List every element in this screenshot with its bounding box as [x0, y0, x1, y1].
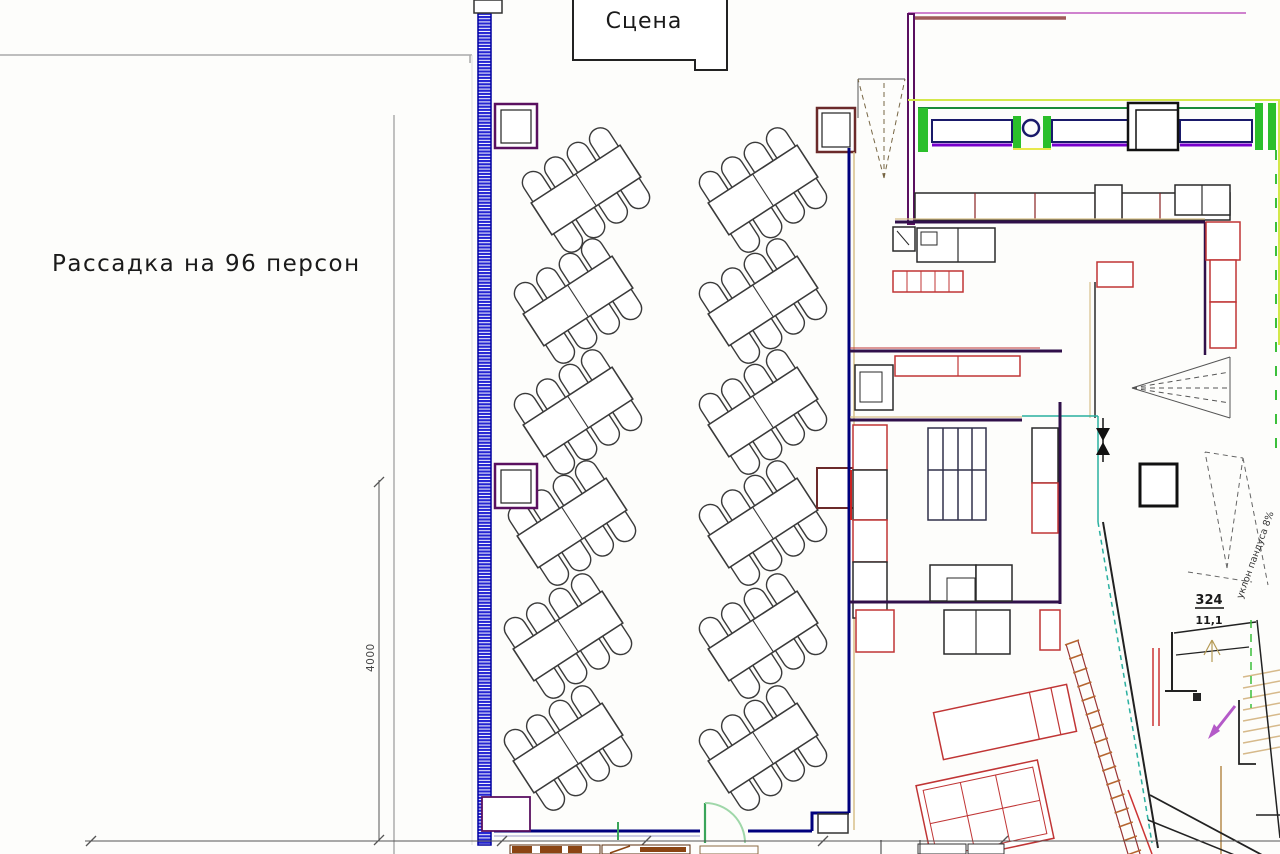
wall-hatch-tick — [1115, 808, 1129, 813]
room-number: 324 — [1195, 593, 1222, 608]
banquet-table — [508, 234, 647, 369]
wall-hatch-tick — [1106, 780, 1120, 785]
left-annotation-area: 4000 Рассадка на 96 персон — [0, 55, 472, 854]
wall-hatch-tick — [1082, 696, 1096, 701]
floor-plan-canvas[interactable]: 4000 Рассадка на 96 персон Сцена — [0, 0, 1280, 854]
wall-hatch-tick — [1123, 836, 1137, 841]
banquet-tables-layer — [498, 123, 832, 816]
bottom-strip — [85, 836, 1280, 854]
newel-post — [1193, 693, 1201, 701]
diagonal-wall-hatch — [1065, 640, 1141, 854]
wall-hatch-tick — [1094, 738, 1108, 743]
seating-title: Рассадка на 96 персон — [52, 251, 361, 277]
equipment-box — [1210, 260, 1236, 302]
equipment-box — [944, 610, 1010, 654]
counter-unit — [1180, 120, 1252, 142]
stair-treads — [1243, 670, 1280, 754]
room-tag: 324 11,1 — [1195, 593, 1224, 627]
diagonal-bench — [933, 684, 1076, 759]
equipment-box-inner — [860, 372, 882, 402]
equipment-column-left — [851, 425, 887, 618]
banquet-table — [693, 123, 832, 258]
equipment-box — [1040, 610, 1060, 650]
equipment-box — [853, 470, 887, 520]
pilaster — [818, 814, 848, 833]
wall-hatch-tick — [1110, 794, 1124, 799]
stair-tread — [1243, 703, 1280, 710]
wall-hatch-tick — [1086, 710, 1100, 715]
banquet-hall — [482, 104, 855, 843]
equipment-box-inner — [947, 578, 975, 601]
shelving-unit — [928, 428, 986, 520]
pilaster — [482, 797, 530, 831]
banquet-table — [693, 234, 832, 369]
stage-label: Сцена — [606, 9, 683, 34]
equipment-box — [856, 610, 894, 652]
equipment-box — [1210, 302, 1236, 348]
equipment-modules — [893, 271, 963, 292]
wall-hatch-tick — [1090, 724, 1104, 729]
hall-bottom-wall — [494, 813, 849, 831]
stage-area: Сцена — [573, 0, 727, 70]
shaft-box — [1140, 464, 1177, 506]
wall-hatch-tick — [1119, 822, 1133, 827]
diagonal-wall-edge — [1066, 644, 1128, 854]
door-fan-right — [1132, 357, 1230, 418]
wall-hatch-tick — [1069, 654, 1083, 659]
banquet-table — [693, 681, 832, 816]
direction-arrow — [1208, 706, 1235, 739]
counter-unit — [1052, 120, 1128, 142]
stair-tread — [1243, 736, 1280, 743]
walkway — [1174, 622, 1256, 662]
equipment-box — [1032, 483, 1058, 533]
hatched-wall-band — [478, 0, 491, 845]
banquet-table — [498, 569, 637, 704]
teal-guide-diagonal — [1098, 522, 1152, 843]
stair-tread — [1243, 714, 1280, 721]
stair-tread — [1243, 692, 1280, 699]
equipment-box — [1206, 222, 1240, 260]
stair-tread — [1243, 747, 1280, 754]
counter-green-block — [918, 108, 928, 152]
stair-tread — [1243, 725, 1280, 732]
banquet-table — [498, 681, 637, 816]
counter-green-block — [1268, 103, 1276, 150]
wall-end-box — [474, 0, 502, 13]
equipment-column-right — [1206, 222, 1240, 348]
up-arrow-icon — [1204, 640, 1220, 662]
equipment-row — [915, 185, 1230, 220]
dimension-label-4000: 4000 — [365, 643, 377, 672]
door-swing-arc — [705, 803, 745, 843]
equipment-box — [853, 520, 887, 562]
equipment-box — [1097, 262, 1133, 287]
door-fan-top — [858, 79, 905, 178]
wall-hatch-tick — [1077, 682, 1091, 687]
equipment-box — [853, 425, 887, 470]
equipment-box — [976, 565, 1012, 601]
wall-hatch-tick — [1073, 668, 1087, 673]
banquet-table — [693, 345, 832, 480]
stair-landing-wall — [1165, 632, 1197, 691]
banquet-table — [693, 569, 832, 704]
stair-tread — [1243, 681, 1280, 688]
equipment-box-inner — [921, 232, 937, 245]
equipment-box — [1095, 185, 1122, 220]
column-pier-inner — [501, 110, 531, 143]
wall-hatch-tick — [1102, 766, 1116, 771]
column-pier-inner — [822, 113, 850, 147]
diagonal-table-grid — [916, 760, 1054, 854]
wall-hatch-tick — [1065, 640, 1079, 645]
kitchen-counter-row — [908, 100, 1280, 152]
counter-green-block — [1043, 116, 1051, 150]
counter-green-block — [1255, 103, 1263, 150]
column-pier-inner — [501, 470, 531, 503]
counter-green-block — [1013, 116, 1021, 150]
equipment-box — [1032, 428, 1058, 483]
wall-hatch-tick — [1098, 752, 1112, 757]
counter-unit — [932, 120, 1012, 142]
kitchen-partition-wall — [908, 14, 914, 224]
stair-tread — [1243, 670, 1280, 677]
banquet-table — [693, 456, 832, 591]
equipment-cluster-upper — [893, 227, 1133, 292]
room-area: 11,1 — [1195, 614, 1222, 627]
sink-icon — [1023, 120, 1039, 136]
banquet-table — [508, 345, 647, 480]
